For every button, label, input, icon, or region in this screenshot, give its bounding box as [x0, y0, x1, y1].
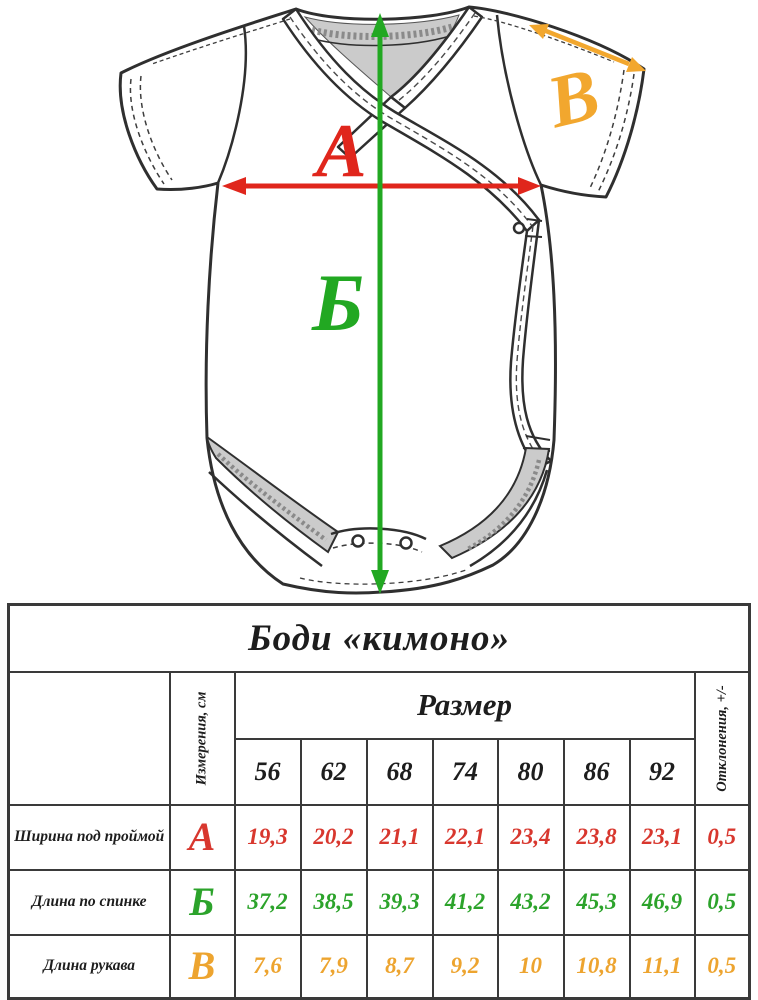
row-label-cell: Длина рукава: [9, 935, 170, 999]
size-col-header: 68: [367, 739, 433, 805]
value-cell: 23,8: [564, 805, 630, 870]
size-col-header: 56: [235, 739, 301, 805]
row-label-cell: Ширина под проймой: [9, 805, 170, 870]
row-letter-cell: Б: [170, 870, 235, 935]
row-label-cell: Длина по спинке: [9, 870, 170, 935]
size-header: Размер: [417, 687, 512, 722]
value-cell: 8,7: [367, 935, 433, 999]
value-cell: 38,5: [301, 870, 367, 935]
size-col-header: 62: [301, 739, 367, 805]
value-cell: 41,2: [433, 870, 498, 935]
deviation-cell: 0,5: [695, 805, 750, 870]
row-letter-cell: В: [170, 935, 235, 999]
deviation-cell: 0,5: [695, 870, 750, 935]
table-row-width-under-armhole: Ширина под проймой А 19,3 20,2 21,1 22,1…: [9, 805, 750, 870]
side-snap-button: [514, 223, 524, 233]
value-cell: 10,8: [564, 935, 630, 999]
row-letter-cell: А: [170, 805, 235, 870]
measure-label-b: Б: [311, 257, 364, 348]
value-cell: 37,2: [235, 870, 301, 935]
value-cell: 10: [498, 935, 564, 999]
deviation-header-cell: Отклонения, +/-: [695, 672, 750, 805]
measurements-header-cell: Измерения, см: [170, 672, 235, 805]
value-cell: 46,9: [630, 870, 695, 935]
size-col-header: 92: [630, 739, 695, 805]
table-title: Боди «кимоно»: [248, 618, 510, 659]
crotch-snap-right: [401, 538, 412, 549]
value-cell: 7,6: [235, 935, 301, 999]
size-chart-sheet: А Б В Боди «кимоно»: [0, 0, 758, 1000]
size-col-header: 80: [498, 739, 564, 805]
bodysuit-diagram: А Б В: [0, 0, 758, 603]
crotch-snap-left: [353, 536, 364, 547]
value-cell: 20,2: [301, 805, 367, 870]
value-cell: 23,1: [630, 805, 695, 870]
size-col-header: 86: [564, 739, 630, 805]
value-cell: 11,1: [630, 935, 695, 999]
deviation-header: Отклонения, +/-: [713, 685, 730, 792]
value-cell: 21,1: [367, 805, 433, 870]
measurements-header: Измерения, см: [194, 691, 211, 785]
measure-label-a: А: [312, 109, 367, 193]
corner-empty-cell: [9, 672, 170, 805]
value-cell: 39,3: [367, 870, 433, 935]
deviation-cell: 0,5: [695, 935, 750, 999]
value-cell: 22,1: [433, 805, 498, 870]
value-cell: 23,4: [498, 805, 564, 870]
value-cell: 43,2: [498, 870, 564, 935]
value-cell: 9,2: [433, 935, 498, 999]
table-row-back-length: Длина по спинке Б 37,2 38,5 39,3 41,2 43…: [9, 870, 750, 935]
size-header-cell: Размер: [235, 672, 695, 739]
value-cell: 7,9: [301, 935, 367, 999]
value-cell: 45,3: [564, 870, 630, 935]
size-table: Боди «кимоно» Измерения, см Размер Откло…: [7, 603, 751, 1000]
table-title-cell: Боди «кимоно»: [9, 605, 750, 672]
table-row-sleeve-length: Длина рукава В 7,6 7,9 8,7 9,2 10 10,8 1…: [9, 935, 750, 999]
value-cell: 19,3: [235, 805, 301, 870]
size-col-header: 74: [433, 739, 498, 805]
